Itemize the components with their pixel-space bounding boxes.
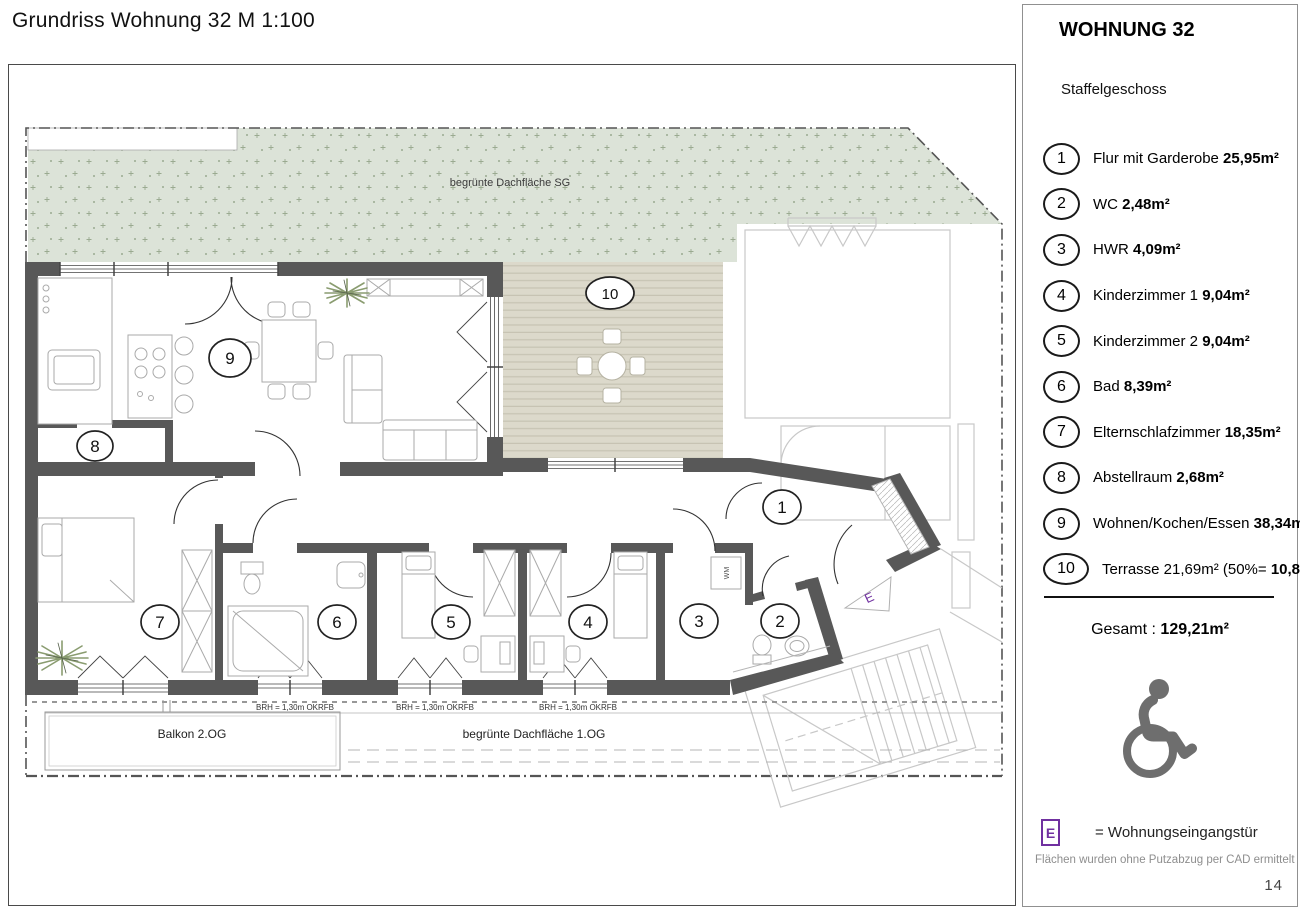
room-label: Bad 8,39m²	[1093, 378, 1171, 395]
toilet-icon	[753, 635, 771, 655]
kid1-door	[567, 553, 611, 597]
entrance-symbol-box: E	[1041, 819, 1060, 846]
room-list-item: 6Bad 8,39m²	[1043, 364, 1300, 410]
room-marker-8: 8	[77, 431, 113, 461]
room-marker-4: 4	[569, 605, 607, 639]
room-list-item: 7Elternschlafzimmer 18,35m²	[1043, 410, 1300, 456]
room-number-badge: 3	[1043, 234, 1080, 266]
plant-bedroom	[36, 641, 88, 675]
svg-text:9: 9	[225, 349, 234, 368]
svg-text:7: 7	[155, 613, 164, 632]
living-corridor-door	[255, 431, 300, 476]
svg-text:8: 8	[90, 437, 99, 456]
room-label: HWR 4,09m²	[1093, 241, 1181, 258]
svg-text:3: 3	[694, 612, 703, 631]
window-terrace-side	[457, 297, 503, 437]
room-list-item: 2WC 2,48m²	[1043, 182, 1300, 228]
brh-label-2: BRH = 1,30m OKRFB	[396, 703, 474, 712]
svg-text:5: 5	[446, 613, 455, 632]
balcony-outline	[45, 712, 340, 770]
total-area: Gesamt : 129,21m²	[1023, 621, 1297, 639]
room-list-item: 4Kinderzimmer 1 9,04m²	[1043, 273, 1300, 319]
kid2-door	[429, 553, 473, 597]
room-list-item: 3HWR 4,09m²	[1043, 227, 1300, 273]
window-hall-terrace	[548, 458, 683, 472]
svg-text:6: 6	[332, 613, 341, 632]
footnote: Flächen wurden ohne Putzabzug per CAD er…	[1035, 854, 1295, 866]
dining-set	[244, 302, 333, 399]
room-label: Kinderzimmer 1 9,04m²	[1093, 287, 1250, 304]
page-title: Grundriss Wohnung 32 M 1:100	[12, 9, 315, 33]
window-bottom-room5	[398, 658, 462, 695]
window-top-living	[60, 262, 278, 276]
balcony-label: Balkon 2.OG	[158, 727, 227, 741]
legend-divider	[1044, 596, 1274, 598]
washer-label: WM	[724, 567, 731, 580]
room-marker-9: 9	[209, 339, 251, 377]
svg-text:4: 4	[583, 613, 592, 632]
room-marker-5: 5	[432, 605, 470, 639]
brh-label-1: BRH = 1,30m OKRFB	[256, 703, 334, 712]
room-number-badge: 10	[1043, 553, 1089, 585]
roof-sg-label: begrünte Dachfläche SG	[450, 177, 570, 189]
parents-room-door	[174, 480, 218, 524]
wardrobe-parents	[182, 550, 212, 672]
roof-1og-label: begrünte Dachfläche 1.OG	[463, 727, 606, 741]
room-list-item: 1Flur mit Garderobe 25,95m²	[1043, 136, 1300, 182]
floor-subheading: Staffelgeschoss	[1061, 81, 1167, 98]
sink-icon	[337, 562, 365, 588]
room-number-badge: 8	[1043, 462, 1080, 494]
page-number: 14	[1264, 877, 1283, 894]
room-label: Wohnen/Kochen/Essen 38,34m²	[1093, 515, 1300, 532]
green-roof-area: begrünte Dachfläche SG	[28, 128, 1002, 262]
chair-icon	[566, 646, 580, 662]
room-number-badge: 1	[1043, 143, 1080, 175]
svg-text:10: 10	[602, 286, 619, 303]
entrance-legend: E = Wohnungseingangstür	[1041, 819, 1258, 846]
room-number-badge: 5	[1043, 325, 1080, 357]
legend-panel: WOHNUNG 32 Staffelgeschoss 1Flur mit Gar…	[1022, 4, 1298, 907]
plant-living	[325, 279, 369, 307]
room-list-item: 9Wohnen/Kochen/Essen 38,34m²	[1043, 501, 1300, 547]
kitchen-counter	[38, 278, 112, 424]
folding-door-icon	[788, 226, 876, 246]
room-marker-10: 10	[586, 277, 634, 309]
balcony-and-lower-roof: Balkon 2.OG begrünte Dachfläche 1.OG BRH…	[32, 700, 1002, 770]
room-list-item: 10Terrasse 21,69m² (50%= 10,85m²)	[1043, 546, 1300, 592]
room-marker-1: 1	[763, 490, 801, 524]
sofa-group	[344, 355, 477, 460]
room-marker-7: 7	[141, 605, 179, 639]
svg-text:1: 1	[777, 498, 786, 517]
neighbour-staircase	[744, 629, 975, 807]
room-number-badge: 2	[1043, 188, 1080, 220]
room-list-item: 8Abstellraum 2,68m²	[1043, 455, 1300, 501]
room-marker-3: 3	[680, 604, 718, 638]
entrance-door	[834, 525, 852, 584]
room-label: Flur mit Garderobe 25,95m²	[1093, 150, 1279, 167]
roof-notch	[28, 128, 237, 150]
room-label: Abstellraum 2,68m²	[1093, 469, 1224, 486]
toilet-icon	[241, 562, 263, 574]
hwr-door	[673, 509, 715, 551]
bar-stool	[175, 366, 193, 384]
wheelchair-icon	[1095, 675, 1225, 787]
bar-stool	[175, 395, 193, 413]
room-list-item: 5Kinderzimmer 2 9,04m²	[1043, 318, 1300, 364]
sideboard	[367, 279, 483, 296]
terrace-double-door-left	[185, 277, 232, 324]
bar-stool	[175, 337, 193, 355]
window-bottom-room7	[78, 656, 168, 695]
room-label: Terrasse 21,69m² (50%= 10,85m²)	[1102, 561, 1300, 578]
room-marker-2: 2	[761, 604, 799, 638]
room-marker-6: 6	[318, 605, 356, 639]
entrance-meaning: = Wohnungseingangstür	[1095, 824, 1258, 841]
apartment-heading: WOHNUNG 32	[1059, 19, 1195, 42]
floorplan-page: Grundriss Wohnung 32 M 1:100 begrünte Da	[0, 0, 1300, 910]
bed-parents	[38, 518, 134, 602]
hall-door	[726, 483, 762, 519]
room-label: WC 2,48m²	[1093, 196, 1170, 213]
room-number-badge: 4	[1043, 280, 1080, 312]
bath-door	[253, 499, 297, 543]
floor-plan-drawing: begrünte Dachfläche SG	[8, 64, 1015, 905]
brh-label-3: BRH = 1,30m OKRFB	[539, 703, 617, 712]
room-list: 1Flur mit Garderobe 25,95m² 2WC 2,48m² 3…	[1043, 136, 1300, 592]
room-label: Elternschlafzimmer 18,35m²	[1093, 424, 1281, 441]
kitchen-island	[128, 335, 193, 418]
room-label: Kinderzimmer 2 9,04m²	[1093, 333, 1250, 350]
chair-icon	[464, 646, 478, 662]
wc-door	[762, 556, 789, 596]
room-number-badge: 7	[1043, 416, 1080, 448]
svg-text:2: 2	[775, 612, 784, 631]
room-number-badge: 9	[1043, 508, 1080, 540]
entrance-marker: E	[845, 577, 891, 611]
room-number-badge: 6	[1043, 371, 1080, 403]
